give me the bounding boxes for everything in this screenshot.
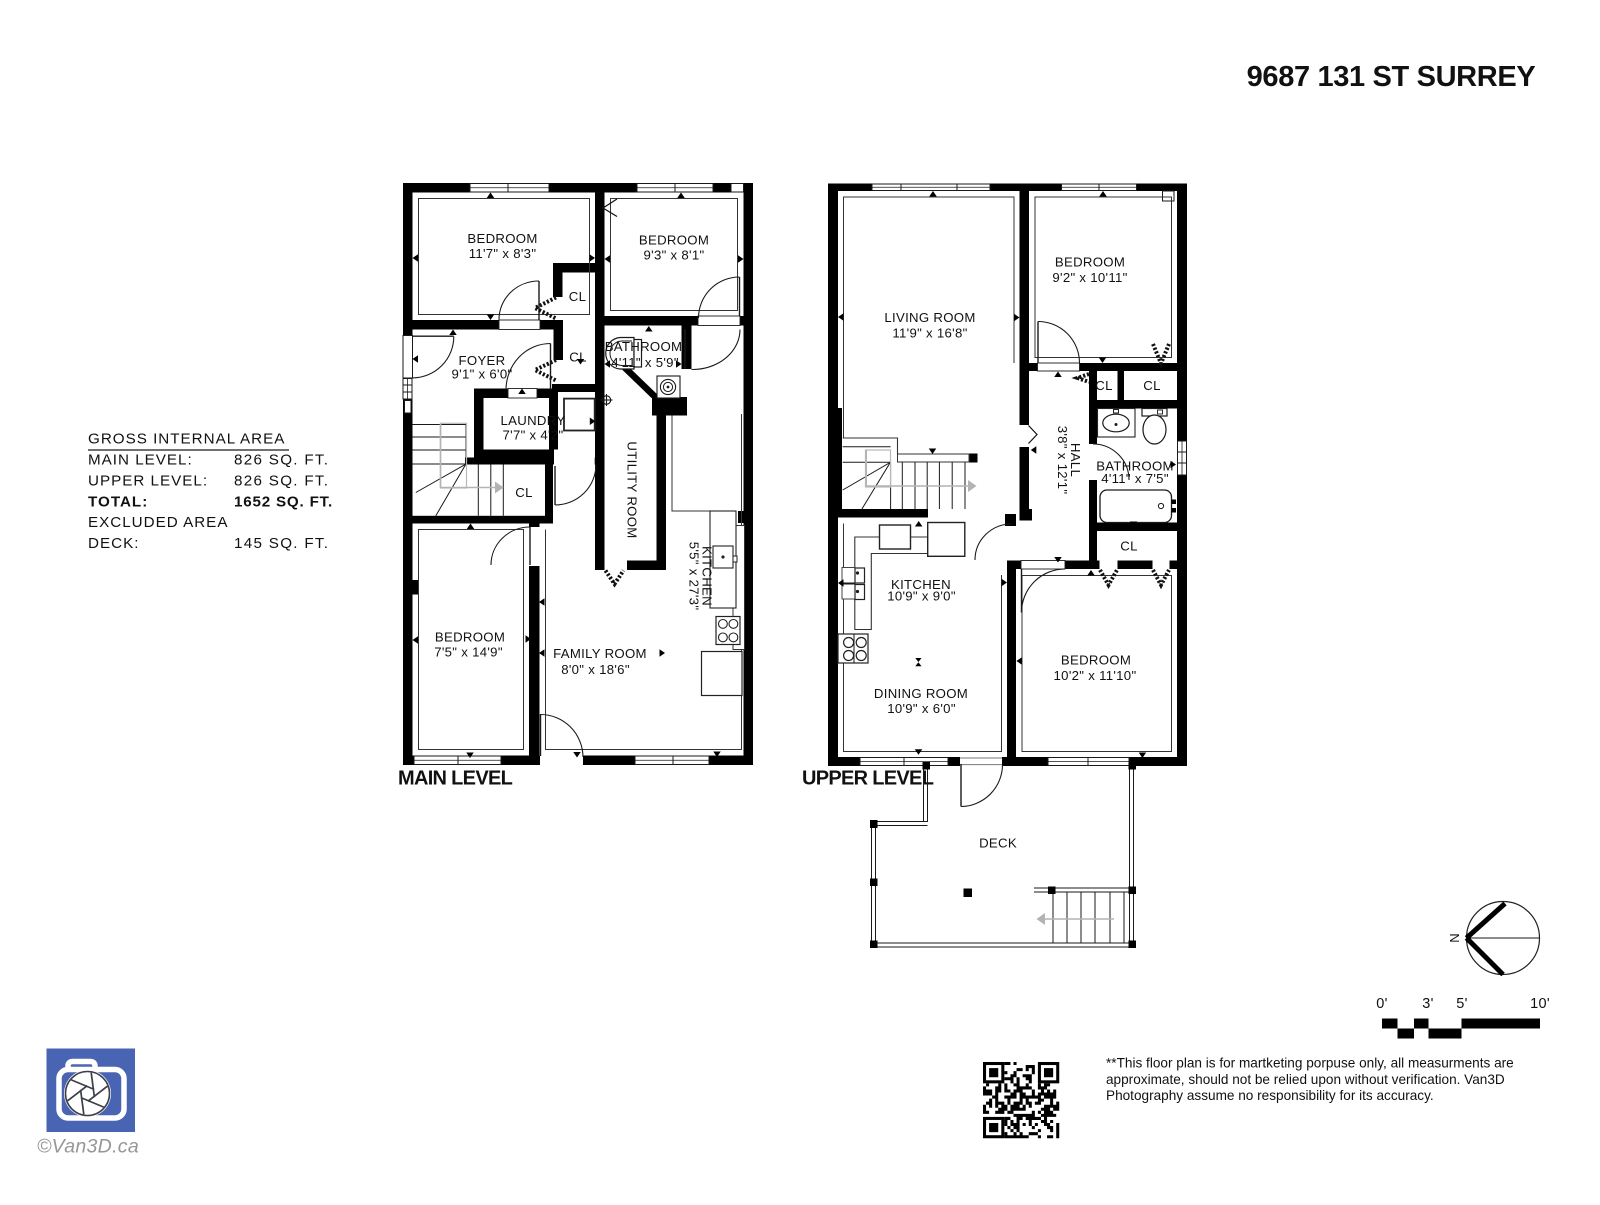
svg-text:CL: CL bbox=[1120, 539, 1137, 554]
svg-text:9'2" x 10'11": 9'2" x 10'11" bbox=[1052, 270, 1127, 285]
svg-text:1652 SQ. FT.: 1652 SQ. FT. bbox=[234, 494, 333, 511]
svg-text:10'9" x 9'0": 10'9" x 9'0" bbox=[887, 589, 956, 604]
svg-text:**This floor plan is for martk: **This floor plan is for martketing porp… bbox=[1106, 1056, 1514, 1071]
svg-text:11'7" x 8'3": 11'7" x 8'3" bbox=[469, 246, 537, 261]
svg-text:DECK: DECK bbox=[979, 836, 1017, 851]
svg-text:UPPER LEVEL: UPPER LEVEL bbox=[802, 768, 934, 790]
svg-text:CL: CL bbox=[569, 289, 586, 304]
svg-text:9'3" x 8'1": 9'3" x 8'1" bbox=[644, 248, 705, 263]
svg-text:11'9" x 16'8": 11'9" x 16'8" bbox=[892, 326, 967, 341]
svg-text:approximate, should not be rel: approximate, should not be relied upon w… bbox=[1106, 1072, 1505, 1087]
svg-text:N: N bbox=[1447, 933, 1462, 942]
svg-text:BEDROOM: BEDROOM bbox=[1055, 255, 1125, 270]
svg-text:LIVING ROOM: LIVING ROOM bbox=[884, 310, 975, 325]
svg-text:LAUNDRY: LAUNDRY bbox=[501, 413, 566, 428]
svg-text:CL: CL bbox=[515, 485, 532, 500]
svg-text:UPPER LEVEL:: UPPER LEVEL: bbox=[88, 473, 208, 490]
svg-text:10'2" x 11'10": 10'2" x 11'10" bbox=[1054, 668, 1137, 683]
svg-text:5'5" x 27'3": 5'5" x 27'3" bbox=[687, 542, 702, 611]
svg-text:8'0" x 18'6": 8'0" x 18'6" bbox=[561, 662, 630, 677]
svg-text:BEDROOM: BEDROOM bbox=[1061, 653, 1131, 668]
svg-text:4'11" x 7'5": 4'11" x 7'5" bbox=[1101, 471, 1169, 486]
svg-text:10'9" x 6'0": 10'9" x 6'0" bbox=[887, 701, 956, 716]
svg-text:7'5" x 14'9": 7'5" x 14'9" bbox=[434, 645, 503, 660]
svg-text:9'1" x 6'0": 9'1" x 6'0" bbox=[452, 367, 513, 382]
svg-text:EXCLUDED AREA: EXCLUDED AREA bbox=[88, 514, 228, 531]
svg-text:10': 10' bbox=[1530, 996, 1550, 1012]
svg-text:9687 131 ST SURREY: 9687 131 ST SURREY bbox=[1247, 61, 1536, 93]
svg-text:826 SQ. FT.: 826 SQ. FT. bbox=[234, 452, 329, 469]
svg-text:145 SQ. FT.: 145 SQ. FT. bbox=[234, 535, 329, 552]
svg-text:MAIN LEVEL: MAIN LEVEL bbox=[398, 768, 513, 790]
svg-text:CL: CL bbox=[1143, 378, 1160, 393]
svg-text:3': 3' bbox=[1422, 996, 1433, 1012]
svg-text:BATHROOM: BATHROOM bbox=[605, 339, 683, 354]
svg-text:GROSS INTERNAL AREA: GROSS INTERNAL AREA bbox=[88, 431, 285, 448]
svg-text:MAIN LEVEL:: MAIN LEVEL: bbox=[88, 452, 193, 469]
svg-text:5': 5' bbox=[1456, 996, 1467, 1012]
svg-text:BEDROOM: BEDROOM bbox=[435, 630, 505, 645]
svg-text:BEDROOM: BEDROOM bbox=[467, 231, 537, 246]
svg-text:CL: CL bbox=[1095, 378, 1112, 393]
svg-text:DINING ROOM: DINING ROOM bbox=[874, 686, 968, 701]
svg-text:FAMILY ROOM: FAMILY ROOM bbox=[553, 646, 647, 661]
svg-text:0': 0' bbox=[1376, 996, 1387, 1012]
svg-text:826 SQ. FT.: 826 SQ. FT. bbox=[234, 473, 329, 490]
svg-text:UTILITY ROOM: UTILITY ROOM bbox=[625, 441, 640, 538]
svg-text:7'7" x 4'2": 7'7" x 4'2" bbox=[503, 428, 564, 443]
svg-text:4'11" x 5'9": 4'11" x 5'9" bbox=[611, 355, 679, 370]
svg-text:DECK:: DECK: bbox=[88, 535, 139, 552]
svg-text:TOTAL:: TOTAL: bbox=[88, 494, 148, 511]
svg-text:Photography assume no responsi: Photography assume no responsibility for… bbox=[1106, 1088, 1434, 1103]
svg-text:BEDROOM: BEDROOM bbox=[639, 233, 709, 248]
svg-text:©Van3D.ca: ©Van3D.ca bbox=[37, 1136, 139, 1158]
svg-text:CL: CL bbox=[569, 350, 586, 365]
svg-text:3'8" x 12'1": 3'8" x 12'1" bbox=[1055, 426, 1070, 495]
